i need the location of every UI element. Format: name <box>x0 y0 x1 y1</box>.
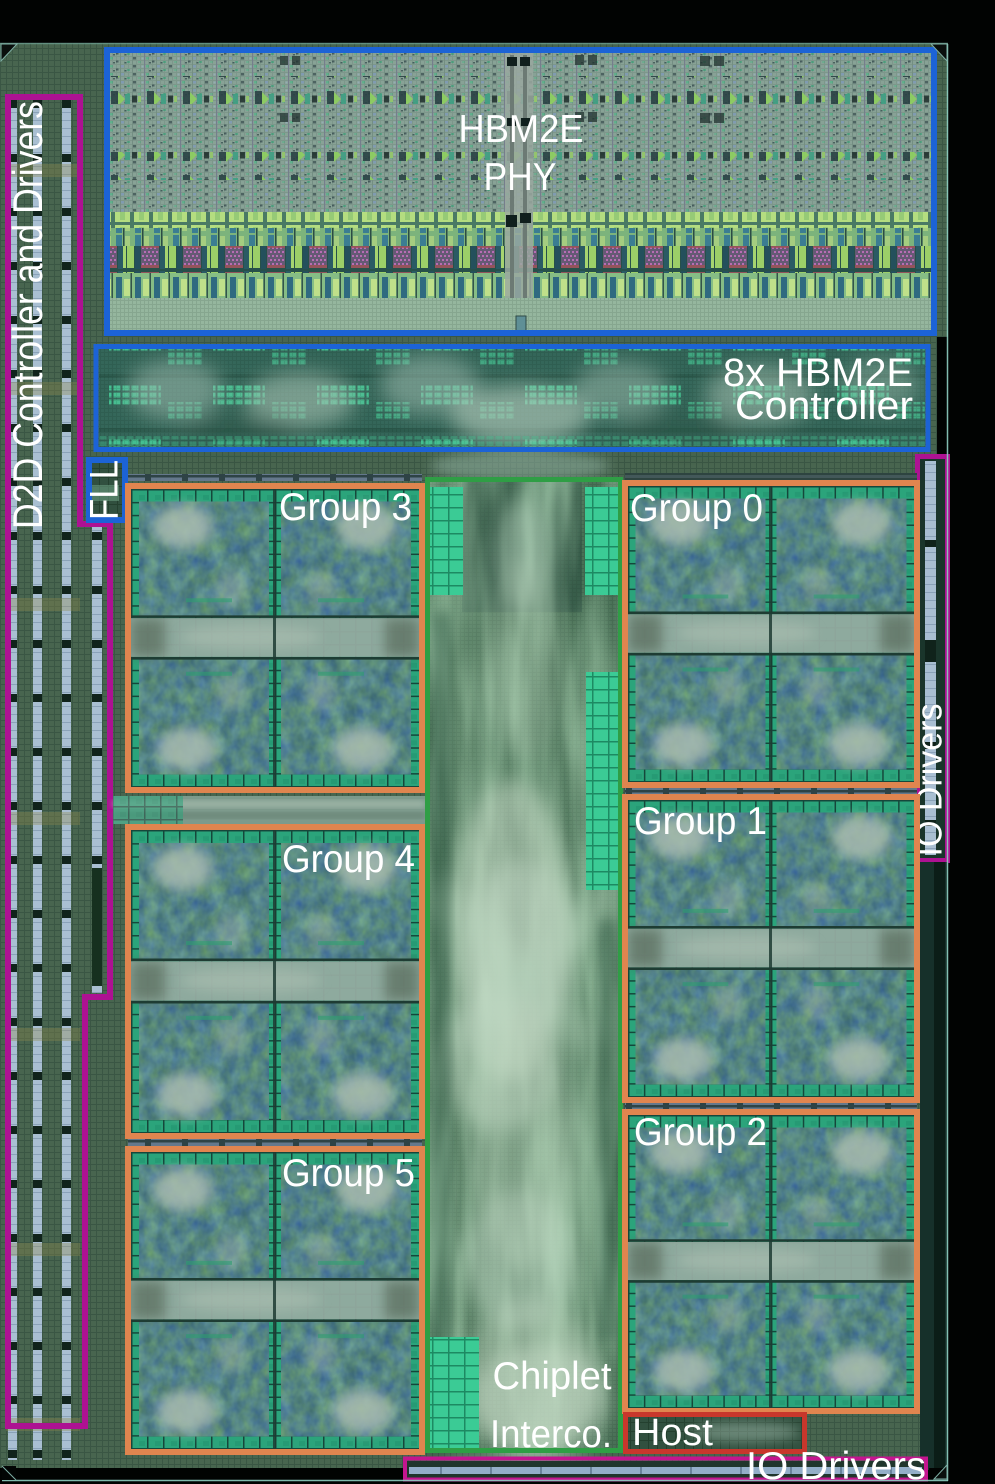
svg-text:Group 3: Group 3 <box>279 486 412 529</box>
svg-text:Group 1: Group 1 <box>634 800 767 843</box>
svg-text:PHY: PHY <box>484 156 557 199</box>
svg-text:Group 5: Group 5 <box>282 1152 415 1195</box>
svg-text:Group 0: Group 0 <box>630 487 763 530</box>
svg-text:D2D Controller and Drivers: D2D Controller and Drivers <box>4 101 51 529</box>
svg-text:Group 2: Group 2 <box>634 1111 767 1154</box>
svg-text:FLL: FLL <box>83 460 127 520</box>
svg-text:Interco.: Interco. <box>490 1413 612 1456</box>
svg-text:HBM2E: HBM2E <box>459 108 584 151</box>
svg-text:Chiplet: Chiplet <box>493 1355 612 1398</box>
svg-text:IO Drivers: IO Drivers <box>746 1445 926 1484</box>
svg-text:Controller: Controller <box>735 384 913 428</box>
svg-text:Group 4: Group 4 <box>282 838 415 881</box>
svg-text:Host: Host <box>632 1412 713 1454</box>
